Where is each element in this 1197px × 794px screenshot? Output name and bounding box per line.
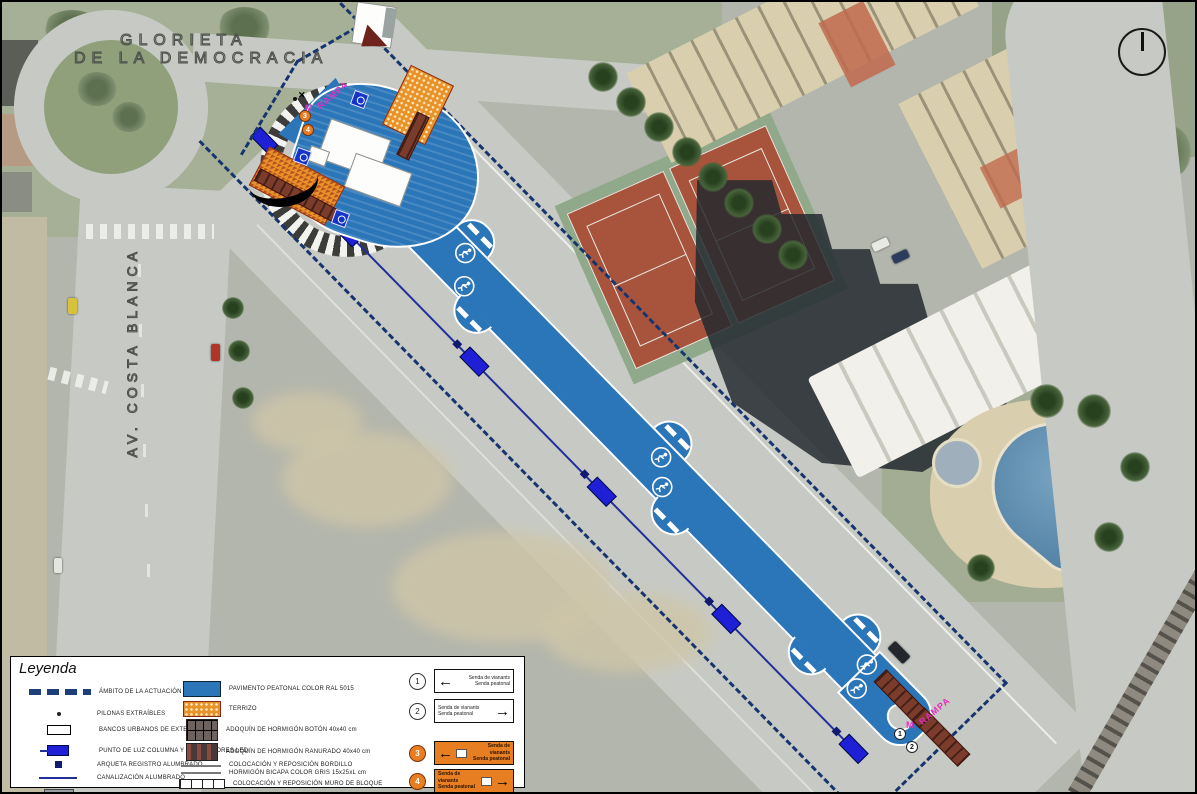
zebra-crossing bbox=[86, 224, 214, 239]
car bbox=[68, 298, 77, 314]
dirt-patch bbox=[252, 392, 362, 452]
legend-item-bordillo: COLOCACIÓN Y REPOSICIÓN BORDILLO HORMIGÓ… bbox=[181, 762, 379, 777]
bollard-dot bbox=[293, 97, 297, 101]
palm-tree bbox=[588, 62, 618, 92]
banco-swatch bbox=[47, 725, 71, 735]
avenue-name: AV. COSTA BLANCA bbox=[124, 247, 140, 457]
small-pool bbox=[932, 438, 982, 488]
palm-tree bbox=[1094, 522, 1124, 552]
building-roof bbox=[2, 172, 32, 212]
punto-luz-swatch bbox=[47, 745, 69, 756]
palm-tree bbox=[644, 112, 674, 142]
lane-marking bbox=[141, 384, 144, 397]
legend-item-pavimento: PAVIMENTO PEATONAL COLOR RAL 5015 bbox=[183, 681, 354, 697]
right-arrow-icon: → bbox=[495, 774, 510, 789]
marker-1: 1 bbox=[894, 728, 906, 740]
legend-item-pilonas: PILONAS EXTRAÍBLES bbox=[29, 711, 165, 717]
right-arrow-icon: → bbox=[495, 704, 510, 719]
legend-item-terrizo: TERRIZO bbox=[183, 701, 257, 717]
legend-sign-3: 3 ← Senda de vianantsSenda peatonal bbox=[409, 741, 514, 765]
plate-icon bbox=[481, 777, 492, 786]
roundabout-name: GLORIETA bbox=[120, 32, 248, 50]
sign-number: 4 bbox=[409, 773, 426, 790]
palm-tree bbox=[228, 340, 250, 362]
car bbox=[871, 237, 890, 252]
lane-marking bbox=[145, 504, 148, 517]
pavimento-swatch bbox=[183, 681, 221, 697]
palm-tree bbox=[1120, 452, 1150, 482]
bollard-cross: ✕ bbox=[298, 90, 306, 101]
site-plan-sheet: ✕ M RAMPA M RAMPA 3 4 1 2 GLORIETA DE LA… bbox=[0, 0, 1197, 794]
palm-tree bbox=[616, 87, 646, 117]
plate-icon bbox=[456, 749, 467, 758]
direction-sign-orange-left: ← Senda de vianantsSenda peatonal bbox=[434, 741, 514, 765]
north-compass-icon bbox=[1118, 28, 1166, 76]
palm-tree bbox=[1077, 394, 1111, 428]
direction-sign-white-right: Senda de vianantsSenda peatonal → bbox=[434, 699, 514, 723]
marker-2: 2 bbox=[906, 741, 918, 753]
ambito-swatch bbox=[29, 689, 91, 695]
lane-marking bbox=[143, 444, 146, 457]
bordillo-swatch bbox=[181, 765, 221, 774]
car bbox=[891, 249, 910, 264]
legend-sign-4: 4 Senda de vianantsSenda peatonal → bbox=[409, 769, 514, 793]
sign-number: 2 bbox=[409, 703, 426, 720]
tree bbox=[77, 72, 117, 106]
palm-tree bbox=[967, 554, 995, 582]
canalizacion-swatch bbox=[39, 777, 77, 779]
adoquin-boton-swatch bbox=[186, 719, 218, 741]
adoquin-ranurado-swatch bbox=[186, 743, 218, 761]
left-arrow-icon: ← bbox=[438, 746, 453, 761]
direction-sign-white-left: ← Senda de vianantsSenda peatonal bbox=[434, 669, 514, 693]
sign-number: 1 bbox=[409, 673, 426, 690]
palm-tree bbox=[222, 297, 244, 319]
legend-item-bancos: BANCOS URBANOS DE EXTERIOR bbox=[29, 725, 203, 735]
palm-tree bbox=[672, 137, 702, 167]
car bbox=[211, 344, 220, 361]
palm-tree bbox=[698, 162, 728, 192]
legend-sign-2: 2 Senda de vianantsSenda peatonal → bbox=[409, 699, 514, 723]
arqueta-swatch bbox=[55, 761, 62, 768]
legend-panel: Leyenda ÁMBITO DE LA ACTUACIÓN PILONAS E… bbox=[10, 656, 525, 788]
palm-tree bbox=[232, 387, 254, 409]
roundabout-name-line2: DE LA DEMOCRACIA bbox=[74, 50, 328, 68]
terrizo-swatch bbox=[183, 701, 221, 717]
palm-tree bbox=[1030, 384, 1064, 418]
legend-sign-1: 1 ← Senda de vianantsSenda peatonal bbox=[409, 669, 514, 693]
rampa-m-marker: M bbox=[906, 720, 914, 730]
legend-item-ambito: ÁMBITO DE LA ACTUACIÓN bbox=[29, 689, 182, 695]
legend-title: Leyenda bbox=[19, 660, 77, 677]
car bbox=[54, 558, 62, 573]
legend-item-adoquin-ranurado: ADOQUÍN DE HORMIGÓN RANURADO 40x40 cm bbox=[186, 743, 370, 761]
legend-item-adoquin-boton: ADOQUÍN DE HORMIGÓN BOTÓN 40x40 cm bbox=[186, 719, 357, 741]
legend-item-muro-bloque: COLOCACIÓN Y REPOSICIÓN MURO DE BLOQUE bbox=[179, 779, 382, 789]
tree bbox=[112, 102, 146, 132]
palm-tree bbox=[778, 240, 808, 270]
rampa-madera-swatch bbox=[44, 789, 74, 794]
legend-item-rampa-madera: RAMPA MADERA 2,40x1,50 m Pte 8% bbox=[29, 789, 208, 794]
muro-bloque-swatch bbox=[179, 779, 225, 789]
sign-number: 3 bbox=[409, 745, 426, 762]
palm-tree bbox=[724, 188, 754, 218]
marker-3: 3 bbox=[299, 110, 311, 122]
marker-4: 4 bbox=[302, 124, 314, 136]
legend-item-arqueta: ARQUETA REGISTRO ALUMBRADO bbox=[29, 761, 203, 768]
left-arrow-icon: ← bbox=[438, 674, 453, 689]
legend-item-canalizacion: CANALIZACIÓN ALUMBRADO bbox=[29, 775, 185, 781]
palm-tree bbox=[752, 214, 782, 244]
pilona-swatch bbox=[57, 712, 61, 716]
lane-marking bbox=[147, 564, 150, 577]
direction-sign-orange-right: Senda de vianantsSenda peatonal → bbox=[434, 769, 514, 793]
